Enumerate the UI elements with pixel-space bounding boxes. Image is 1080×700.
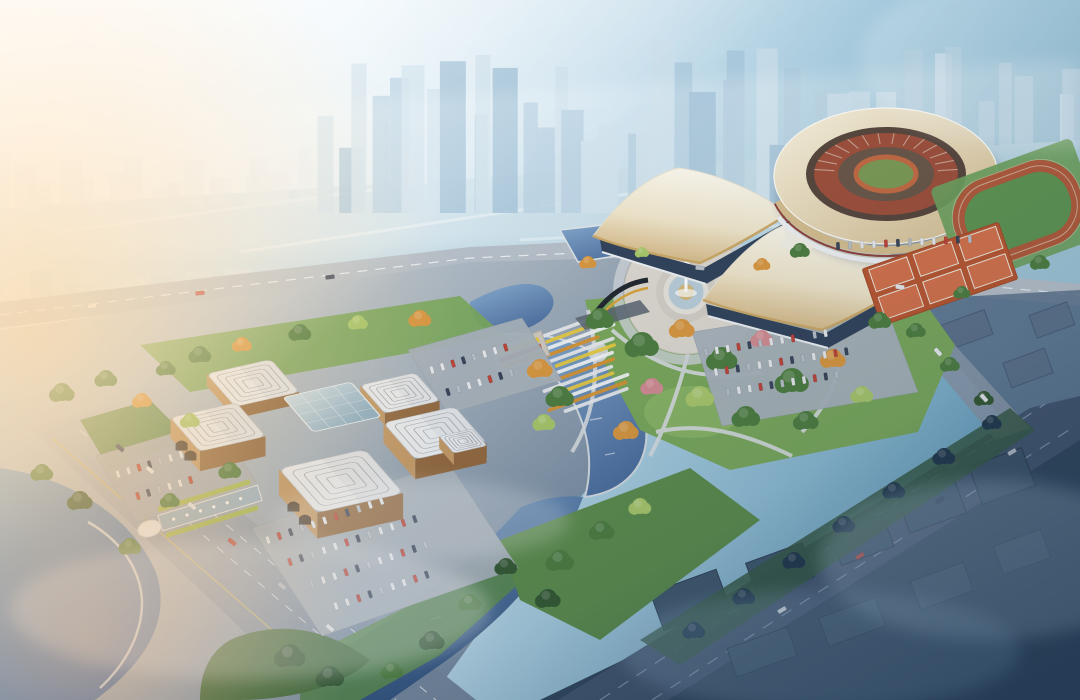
atmosphere — [0, 0, 1080, 700]
vignette — [0, 0, 1080, 700]
aerial-rendering — [0, 0, 1080, 700]
scene-svg — [0, 0, 1080, 700]
